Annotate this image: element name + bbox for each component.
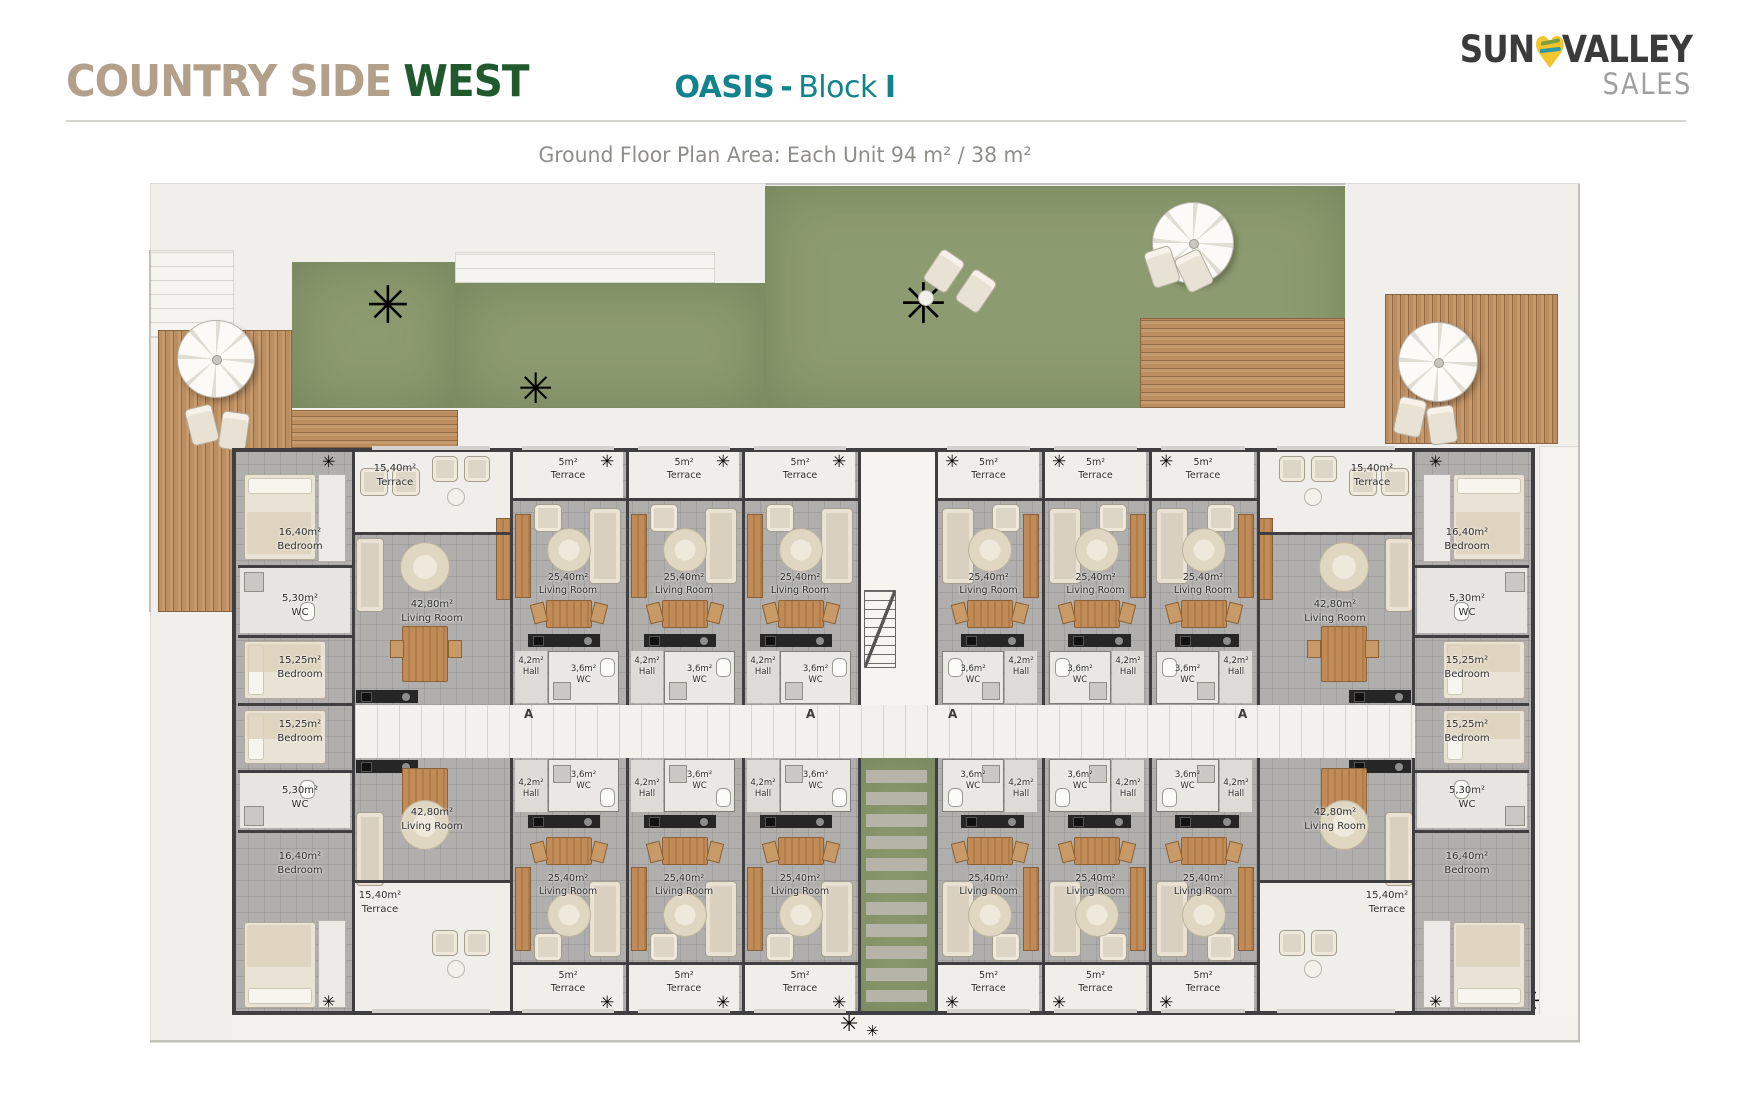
- room-name: Living Room: [1066, 585, 1124, 598]
- room-name: Living Room: [401, 820, 462, 834]
- room-area: 25,40m²: [539, 873, 597, 886]
- room-area: 4,2m²: [1223, 656, 1248, 667]
- room-name: Terrace: [1186, 983, 1221, 996]
- room-name: Terrace: [667, 983, 702, 996]
- room-name: WC: [687, 781, 712, 792]
- wc-label: 3,6m²WC: [687, 770, 712, 793]
- living-room-label: 25,40m²Living Room: [1174, 873, 1232, 899]
- room-name: Terrace: [783, 470, 818, 483]
- room-name: Hall: [634, 667, 659, 678]
- room-area: 5m²: [1078, 970, 1113, 983]
- room-area: 5,30m²: [1449, 784, 1485, 798]
- wc-label: 3,6m²WC: [1175, 664, 1200, 687]
- logo-wordmark: SUN♥VALLEY: [1460, 28, 1692, 71]
- room-name: Hall: [1223, 789, 1248, 800]
- room-area: 5m²: [551, 457, 586, 470]
- room-name: Living Room: [655, 886, 713, 899]
- hall-label: 4,2m²Hall: [518, 778, 543, 801]
- fence: [1578, 184, 1580, 1040]
- window: [522, 1009, 614, 1013]
- living-room-label: 25,40m²Living Room: [539, 873, 597, 899]
- room-area: 5m²: [667, 457, 702, 470]
- window: [1054, 1009, 1137, 1013]
- room-name: Bedroom: [277, 864, 322, 878]
- room-area: 4,2m²: [750, 778, 775, 789]
- room-area: 3,6m²: [1175, 664, 1200, 675]
- room-area: 15,25m²: [1444, 654, 1489, 668]
- fence: [765, 183, 1345, 185]
- room-name: Bedroom: [1444, 540, 1489, 554]
- section-marker: A: [806, 707, 815, 721]
- section-marker: A: [948, 707, 957, 721]
- room-area: 42,80m²: [1304, 598, 1365, 612]
- window: [754, 446, 846, 450]
- walkway: [232, 1015, 1579, 1040]
- room-name: Living Room: [539, 886, 597, 899]
- room-area: 15,40m²: [1351, 462, 1393, 476]
- room-area: 42,80m²: [1304, 806, 1365, 820]
- room-area: 42,80m²: [401, 598, 462, 612]
- wc-label: 5,30m²WC: [282, 784, 318, 811]
- logo-word-sun: SUN: [1460, 28, 1535, 71]
- wc-label: 5,30m²WC: [1449, 784, 1485, 811]
- room-name: Terrace: [1078, 470, 1113, 483]
- room-name: WC: [803, 781, 828, 792]
- window: [754, 1009, 846, 1013]
- window: [1161, 1009, 1245, 1013]
- room-area: 3,6m²: [803, 770, 828, 781]
- block-letter: I: [877, 70, 896, 105]
- room-area: 16,40m²: [1444, 526, 1489, 540]
- terrace-label: 5m²Terrace: [783, 970, 818, 996]
- terrace-label: 5m²Terrace: [1186, 457, 1221, 483]
- room-area: 5m²: [1078, 457, 1113, 470]
- section-marker: A: [1238, 707, 1247, 721]
- room-area: 4,2m²: [634, 656, 659, 667]
- room-area: 5m²: [971, 457, 1006, 470]
- room-name: Hall: [518, 667, 543, 678]
- room-area: 4,2m²: [1115, 656, 1140, 667]
- room-name: Living Room: [771, 886, 829, 899]
- block-word: Block: [798, 70, 877, 105]
- room-area: 25,40m²: [1174, 572, 1232, 585]
- room-area: 16,40m²: [277, 526, 322, 540]
- terrace-label: 5m²Terrace: [551, 457, 586, 483]
- plant-icon: ✳: [366, 276, 410, 336]
- room-name: Living Room: [959, 886, 1017, 899]
- wc-label: 3,6m²WC: [1067, 664, 1092, 687]
- wave-icon: [1540, 38, 1560, 46]
- hall-label: 4,2m²Hall: [750, 656, 775, 679]
- room-name: Terrace: [551, 983, 586, 996]
- terrace-label: 5m²Terrace: [971, 457, 1006, 483]
- window: [638, 1009, 730, 1013]
- room-name: Terrace: [359, 903, 401, 917]
- living-room-label: 25,40m²Living Room: [1066, 873, 1124, 899]
- room-area: 3,6m²: [687, 770, 712, 781]
- window: [947, 446, 1030, 450]
- terrace-label: 15,40m²Terrace: [1366, 889, 1408, 916]
- terrace-label: 5m²Terrace: [1078, 970, 1113, 996]
- wc-label: 3,6m²WC: [803, 770, 828, 793]
- walkway: [1539, 446, 1579, 1040]
- side-table: [918, 290, 934, 306]
- room-name: Living Room: [1174, 585, 1232, 598]
- room-area: 4,2m²: [1008, 656, 1033, 667]
- room-area: 5m²: [783, 970, 818, 983]
- window: [522, 446, 614, 450]
- room-area: 25,40m²: [959, 873, 1017, 886]
- room-name: Living Room: [959, 585, 1017, 598]
- terrace-label: 5m²Terrace: [667, 970, 702, 996]
- plant-icon: ✳: [840, 1012, 858, 1037]
- room-name: Terrace: [783, 983, 818, 996]
- room-name: WC: [1175, 675, 1200, 686]
- living-room-label: 42,80m²Living Room: [401, 598, 462, 625]
- living-room-label: 42,80m²Living Room: [401, 806, 462, 833]
- room-area: 42,80m²: [401, 806, 462, 820]
- hall-label: 4,2m²Hall: [1008, 656, 1033, 679]
- terrace-label: 15,40m²Terrace: [359, 889, 401, 916]
- room-name: Bedroom: [1444, 732, 1489, 746]
- room-name: WC: [1449, 606, 1485, 620]
- page-title: OASIS-BlockI: [0, 70, 1570, 105]
- room-name: WC: [282, 606, 318, 620]
- room-area: 25,40m²: [1066, 873, 1124, 886]
- wc-label: 5,30m²WC: [282, 592, 318, 619]
- terrace-label: 5m²Terrace: [1186, 970, 1221, 996]
- living-room-label: 25,40m²Living Room: [1174, 572, 1232, 598]
- hall-label: 4,2m²Hall: [518, 656, 543, 679]
- room-name: Hall: [1115, 789, 1140, 800]
- room-name: Hall: [1008, 667, 1033, 678]
- living-room-label: 42,80m²Living Room: [1304, 598, 1365, 625]
- living-room-label: 25,40m²Living Room: [1066, 572, 1124, 598]
- terrace-label: 5m²Terrace: [667, 457, 702, 483]
- room-name: WC: [1067, 675, 1092, 686]
- header-divider: [66, 120, 1686, 122]
- room-area: 15,25m²: [1444, 718, 1489, 732]
- fence: [149, 250, 151, 612]
- room-name: Hall: [1223, 667, 1248, 678]
- room-name: Bedroom: [277, 668, 322, 682]
- grass-area: [455, 283, 765, 408]
- floor-plan-page: COUNTRY SIDE WEST OASIS-BlockI SUN♥VALLE…: [0, 0, 1754, 1100]
- window: [372, 446, 490, 450]
- wc-label: 3,6m²WC: [803, 664, 828, 687]
- room-name: Bedroom: [277, 540, 322, 554]
- room-area: 15,40m²: [1366, 889, 1408, 903]
- room-area: 4,2m²: [1223, 778, 1248, 789]
- room-name: WC: [1449, 798, 1485, 812]
- terrace-label: 15,40m²Terrace: [1351, 462, 1393, 489]
- room-name: Hall: [750, 667, 775, 678]
- window: [947, 1009, 1030, 1013]
- bedroom-label: 15,25m²Bedroom: [277, 654, 322, 681]
- room-area: 3,6m²: [687, 664, 712, 675]
- terrace-label: 5m²Terrace: [783, 457, 818, 483]
- bedroom-label: 16,40m²Bedroom: [1444, 850, 1489, 877]
- window: [1161, 446, 1245, 450]
- room-area: 3,6m²: [571, 664, 596, 675]
- hall-label: 4,2m²Hall: [1115, 656, 1140, 679]
- window: [1277, 446, 1395, 450]
- room-name: Terrace: [1078, 983, 1113, 996]
- hall-label: 4,2m²Hall: [1008, 778, 1033, 801]
- hall-label: 4,2m²Hall: [1223, 656, 1248, 679]
- room-area: 5m²: [783, 457, 818, 470]
- room-name: Bedroom: [1444, 668, 1489, 682]
- bedroom-label: 15,25m²Bedroom: [277, 718, 322, 745]
- room-name: Terrace: [1351, 476, 1393, 490]
- room-area: 15,25m²: [277, 654, 322, 668]
- room-name: Hall: [1115, 667, 1140, 678]
- plant-icon: ✳: [866, 1022, 879, 1040]
- room-area: 4,2m²: [634, 778, 659, 789]
- room-name: Living Room: [539, 585, 597, 598]
- living-room-label: 25,40m²Living Room: [959, 873, 1017, 899]
- room-name: Bedroom: [1444, 864, 1489, 878]
- room-area: 3,6m²: [803, 664, 828, 675]
- room-name: Hall: [518, 789, 543, 800]
- room-name: WC: [571, 781, 596, 792]
- room-area: 3,6m²: [960, 664, 985, 675]
- room-area: 25,40m²: [959, 572, 1017, 585]
- building-outline: [232, 448, 1535, 1015]
- room-area: 25,40m²: [1174, 873, 1232, 886]
- room-area: 15,40m²: [359, 889, 401, 903]
- room-name: Living Room: [401, 612, 462, 626]
- wc-label: 3,6m²WC: [960, 770, 985, 793]
- plan-subtitle: Ground Floor Plan Area: Each Unit 94 m² …: [24, 143, 1547, 167]
- room-name: Living Room: [1066, 886, 1124, 899]
- room-area: 5m²: [1186, 970, 1221, 983]
- room-name: WC: [960, 675, 985, 686]
- umbrella-icon: [177, 320, 255, 398]
- title-separator: -: [774, 70, 798, 105]
- wc-label: 3,6m²WC: [571, 664, 596, 687]
- room-name: Hall: [1008, 789, 1033, 800]
- room-name: Living Room: [771, 585, 829, 598]
- room-area: 4,2m²: [750, 656, 775, 667]
- room-area: 4,2m²: [518, 656, 543, 667]
- room-name: WC: [571, 675, 596, 686]
- room-area: 3,6m²: [571, 770, 596, 781]
- room-area: 15,40m²: [374, 462, 416, 476]
- room-area: 5,30m²: [1449, 592, 1485, 606]
- room-name: Terrace: [1366, 903, 1408, 917]
- lounger: [1425, 404, 1458, 446]
- terrace-label: 5m²Terrace: [551, 970, 586, 996]
- window: [638, 446, 730, 450]
- room-area: 3,6m²: [960, 770, 985, 781]
- room-area: 5m²: [667, 970, 702, 983]
- living-room-label: 25,40m²Living Room: [655, 873, 713, 899]
- room-name: Hall: [634, 789, 659, 800]
- room-area: 5,30m²: [282, 784, 318, 798]
- terrace-label: 5m²Terrace: [1078, 457, 1113, 483]
- project-name: OASIS: [674, 70, 774, 105]
- wc-label: 3,6m²WC: [571, 770, 596, 793]
- room-area: 25,40m²: [655, 873, 713, 886]
- lounger: [217, 410, 250, 452]
- plant-icon: ✳: [518, 364, 553, 413]
- room-name: Terrace: [971, 470, 1006, 483]
- room-area: 3,6m²: [1067, 770, 1092, 781]
- room-name: WC: [960, 781, 985, 792]
- terrace-label: 15,40m²Terrace: [374, 462, 416, 489]
- room-area: 4,2m²: [1008, 778, 1033, 789]
- living-room-label: 42,80m²Living Room: [1304, 806, 1365, 833]
- logo-word-sales: SALES: [1460, 67, 1692, 101]
- room-area: 3,6m²: [1175, 770, 1200, 781]
- room-area: 5,30m²: [282, 592, 318, 606]
- living-room-label: 25,40m²Living Room: [539, 572, 597, 598]
- room-area: 25,40m²: [655, 572, 713, 585]
- room-area: 15,25m²: [277, 718, 322, 732]
- wc-label: 3,6m²WC: [687, 664, 712, 687]
- room-area: 3,6m²: [1067, 664, 1092, 675]
- room-name: WC: [1067, 781, 1092, 792]
- room-name: Hall: [750, 789, 775, 800]
- room-name: Living Room: [1174, 886, 1232, 899]
- fence: [150, 1040, 1580, 1042]
- room-area: 16,40m²: [277, 850, 322, 864]
- umbrella-icon: [1398, 322, 1478, 402]
- room-area: 25,40m²: [771, 572, 829, 585]
- room-area: 16,40m²: [1444, 850, 1489, 864]
- terrace-label: 5m²Terrace: [971, 970, 1006, 996]
- logo: SUN♥VALLEY SALES: [1428, 28, 1692, 101]
- bedroom-label: 16,40m²Bedroom: [277, 850, 322, 877]
- wood-deck: [1140, 318, 1345, 408]
- bedroom-label: 15,25m²Bedroom: [1444, 654, 1489, 681]
- room-name: Bedroom: [277, 732, 322, 746]
- wave-icon: [1539, 47, 1560, 53]
- logo-word-valley: VALLEY: [1562, 28, 1692, 71]
- room-name: WC: [282, 798, 318, 812]
- room-name: Living Room: [1304, 612, 1365, 626]
- section-marker: A: [524, 707, 533, 721]
- room-name: Living Room: [655, 585, 713, 598]
- living-room-label: 25,40m²Living Room: [959, 572, 1017, 598]
- room-name: Living Room: [1304, 820, 1365, 834]
- room-name: Terrace: [1186, 470, 1221, 483]
- room-area: 25,40m²: [539, 572, 597, 585]
- room-name: Terrace: [551, 470, 586, 483]
- room-name: Terrace: [971, 983, 1006, 996]
- room-area: 25,40m²: [771, 873, 829, 886]
- room-name: Terrace: [667, 470, 702, 483]
- room-area: 5m²: [1186, 457, 1221, 470]
- bedroom-label: 15,25m²Bedroom: [1444, 718, 1489, 745]
- room-area: 25,40m²: [1066, 572, 1124, 585]
- room-name: Terrace: [374, 476, 416, 490]
- living-room-label: 25,40m²Living Room: [655, 572, 713, 598]
- hall-label: 4,2m²Hall: [1223, 778, 1248, 801]
- hall-label: 4,2m²Hall: [1115, 778, 1140, 801]
- window: [1277, 1009, 1395, 1013]
- room-area: 5m²: [971, 970, 1006, 983]
- wc-label: 3,6m²WC: [1175, 770, 1200, 793]
- room-area: 5m²: [551, 970, 586, 983]
- wc-label: 5,30m²WC: [1449, 592, 1485, 619]
- wc-label: 3,6m²WC: [1067, 770, 1092, 793]
- living-room-label: 25,40m²Living Room: [771, 572, 829, 598]
- living-room-label: 25,40m²Living Room: [771, 873, 829, 899]
- hall-label: 4,2m²Hall: [634, 656, 659, 679]
- room-name: WC: [1175, 781, 1200, 792]
- bedroom-label: 16,40m²Bedroom: [1444, 526, 1489, 553]
- room-area: 4,2m²: [518, 778, 543, 789]
- wc-label: 3,6m²WC: [960, 664, 985, 687]
- bedroom-label: 16,40m²Bedroom: [277, 526, 322, 553]
- room-name: WC: [803, 675, 828, 686]
- room-name: WC: [687, 675, 712, 686]
- window: [372, 1009, 490, 1013]
- window: [1054, 446, 1137, 450]
- hall-label: 4,2m²Hall: [634, 778, 659, 801]
- room-area: 4,2m²: [1115, 778, 1140, 789]
- hall-label: 4,2m²Hall: [750, 778, 775, 801]
